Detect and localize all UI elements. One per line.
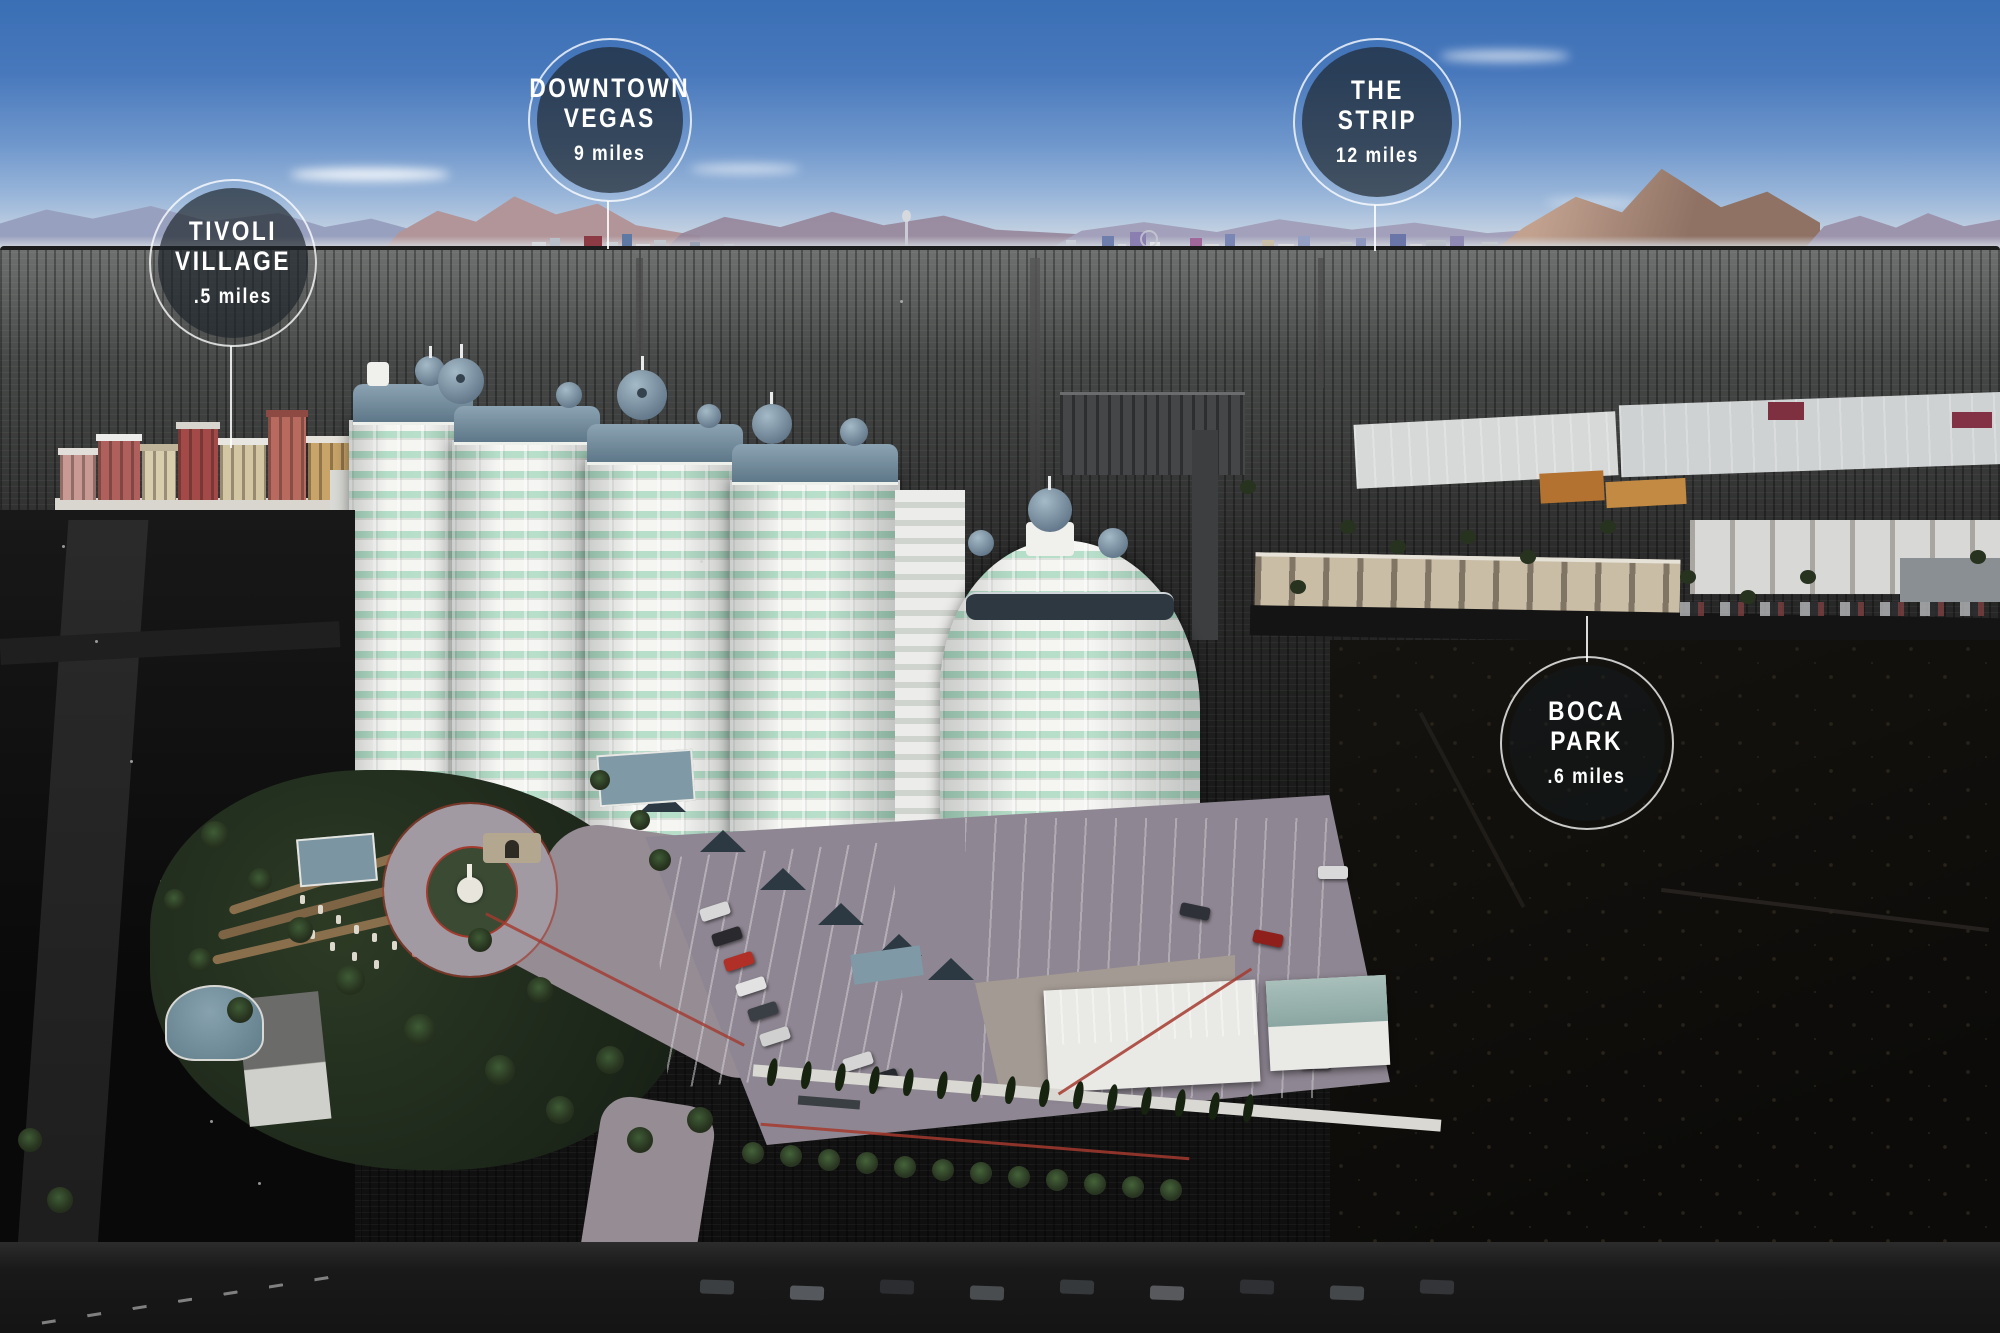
badge-title-line: VEGAS bbox=[564, 104, 656, 133]
badge-distance: .6 miles bbox=[1548, 765, 1626, 789]
badge-text: TIVOLI VILLAGE .5 miles bbox=[175, 217, 291, 308]
badge-text: THE STRIP 12 miles bbox=[1335, 76, 1418, 167]
badge-title-line: THE bbox=[1351, 76, 1404, 105]
resort-grounds bbox=[0, 0, 2000, 1333]
roadside-cars bbox=[0, 0, 2000, 1333]
roadside-car bbox=[1420, 1279, 1454, 1294]
leader-line-strip bbox=[1374, 205, 1376, 251]
roadside-car bbox=[1240, 1279, 1274, 1294]
badge-distance: 9 miles bbox=[574, 142, 646, 166]
leader-line-tivoli bbox=[230, 346, 232, 448]
badge-title-line: PARK bbox=[1551, 727, 1624, 756]
roadside-car bbox=[970, 1285, 1004, 1300]
leader-line-downtown bbox=[607, 201, 609, 249]
roadside-car bbox=[1150, 1285, 1184, 1300]
badge-distance: .5 miles bbox=[194, 285, 272, 309]
badge-title-line: DOWNTOWN bbox=[530, 74, 691, 103]
badge-distance: 12 miles bbox=[1335, 144, 1418, 168]
roadside-car bbox=[1330, 1285, 1364, 1300]
location-badge-tivoli-village: TIVOLI VILLAGE .5 miles bbox=[158, 188, 308, 338]
badge-text: DOWNTOWN VEGAS 9 miles bbox=[530, 74, 691, 165]
roadside-car bbox=[1060, 1279, 1094, 1294]
location-badge-boca-park: BOCA PARK .6 miles bbox=[1509, 665, 1665, 821]
location-badge-the-strip: THE STRIP 12 miles bbox=[1302, 47, 1452, 197]
badge-title-line: BOCA bbox=[1549, 697, 1626, 726]
badge-text: BOCA PARK .6 miles bbox=[1548, 697, 1626, 788]
aerial-photo: TIVOLI VILLAGE .5 miles DOWNTOWN VEGAS 9… bbox=[0, 0, 2000, 1333]
roadside-car bbox=[700, 1279, 734, 1294]
roadside-car bbox=[880, 1279, 914, 1294]
badge-title-line: VILLAGE bbox=[175, 247, 291, 276]
roadside-car bbox=[790, 1285, 824, 1300]
badge-title-line: STRIP bbox=[1337, 106, 1416, 135]
location-badge-downtown-vegas: DOWNTOWN VEGAS 9 miles bbox=[537, 47, 683, 193]
badge-title-line: TIVOLI bbox=[189, 217, 277, 246]
